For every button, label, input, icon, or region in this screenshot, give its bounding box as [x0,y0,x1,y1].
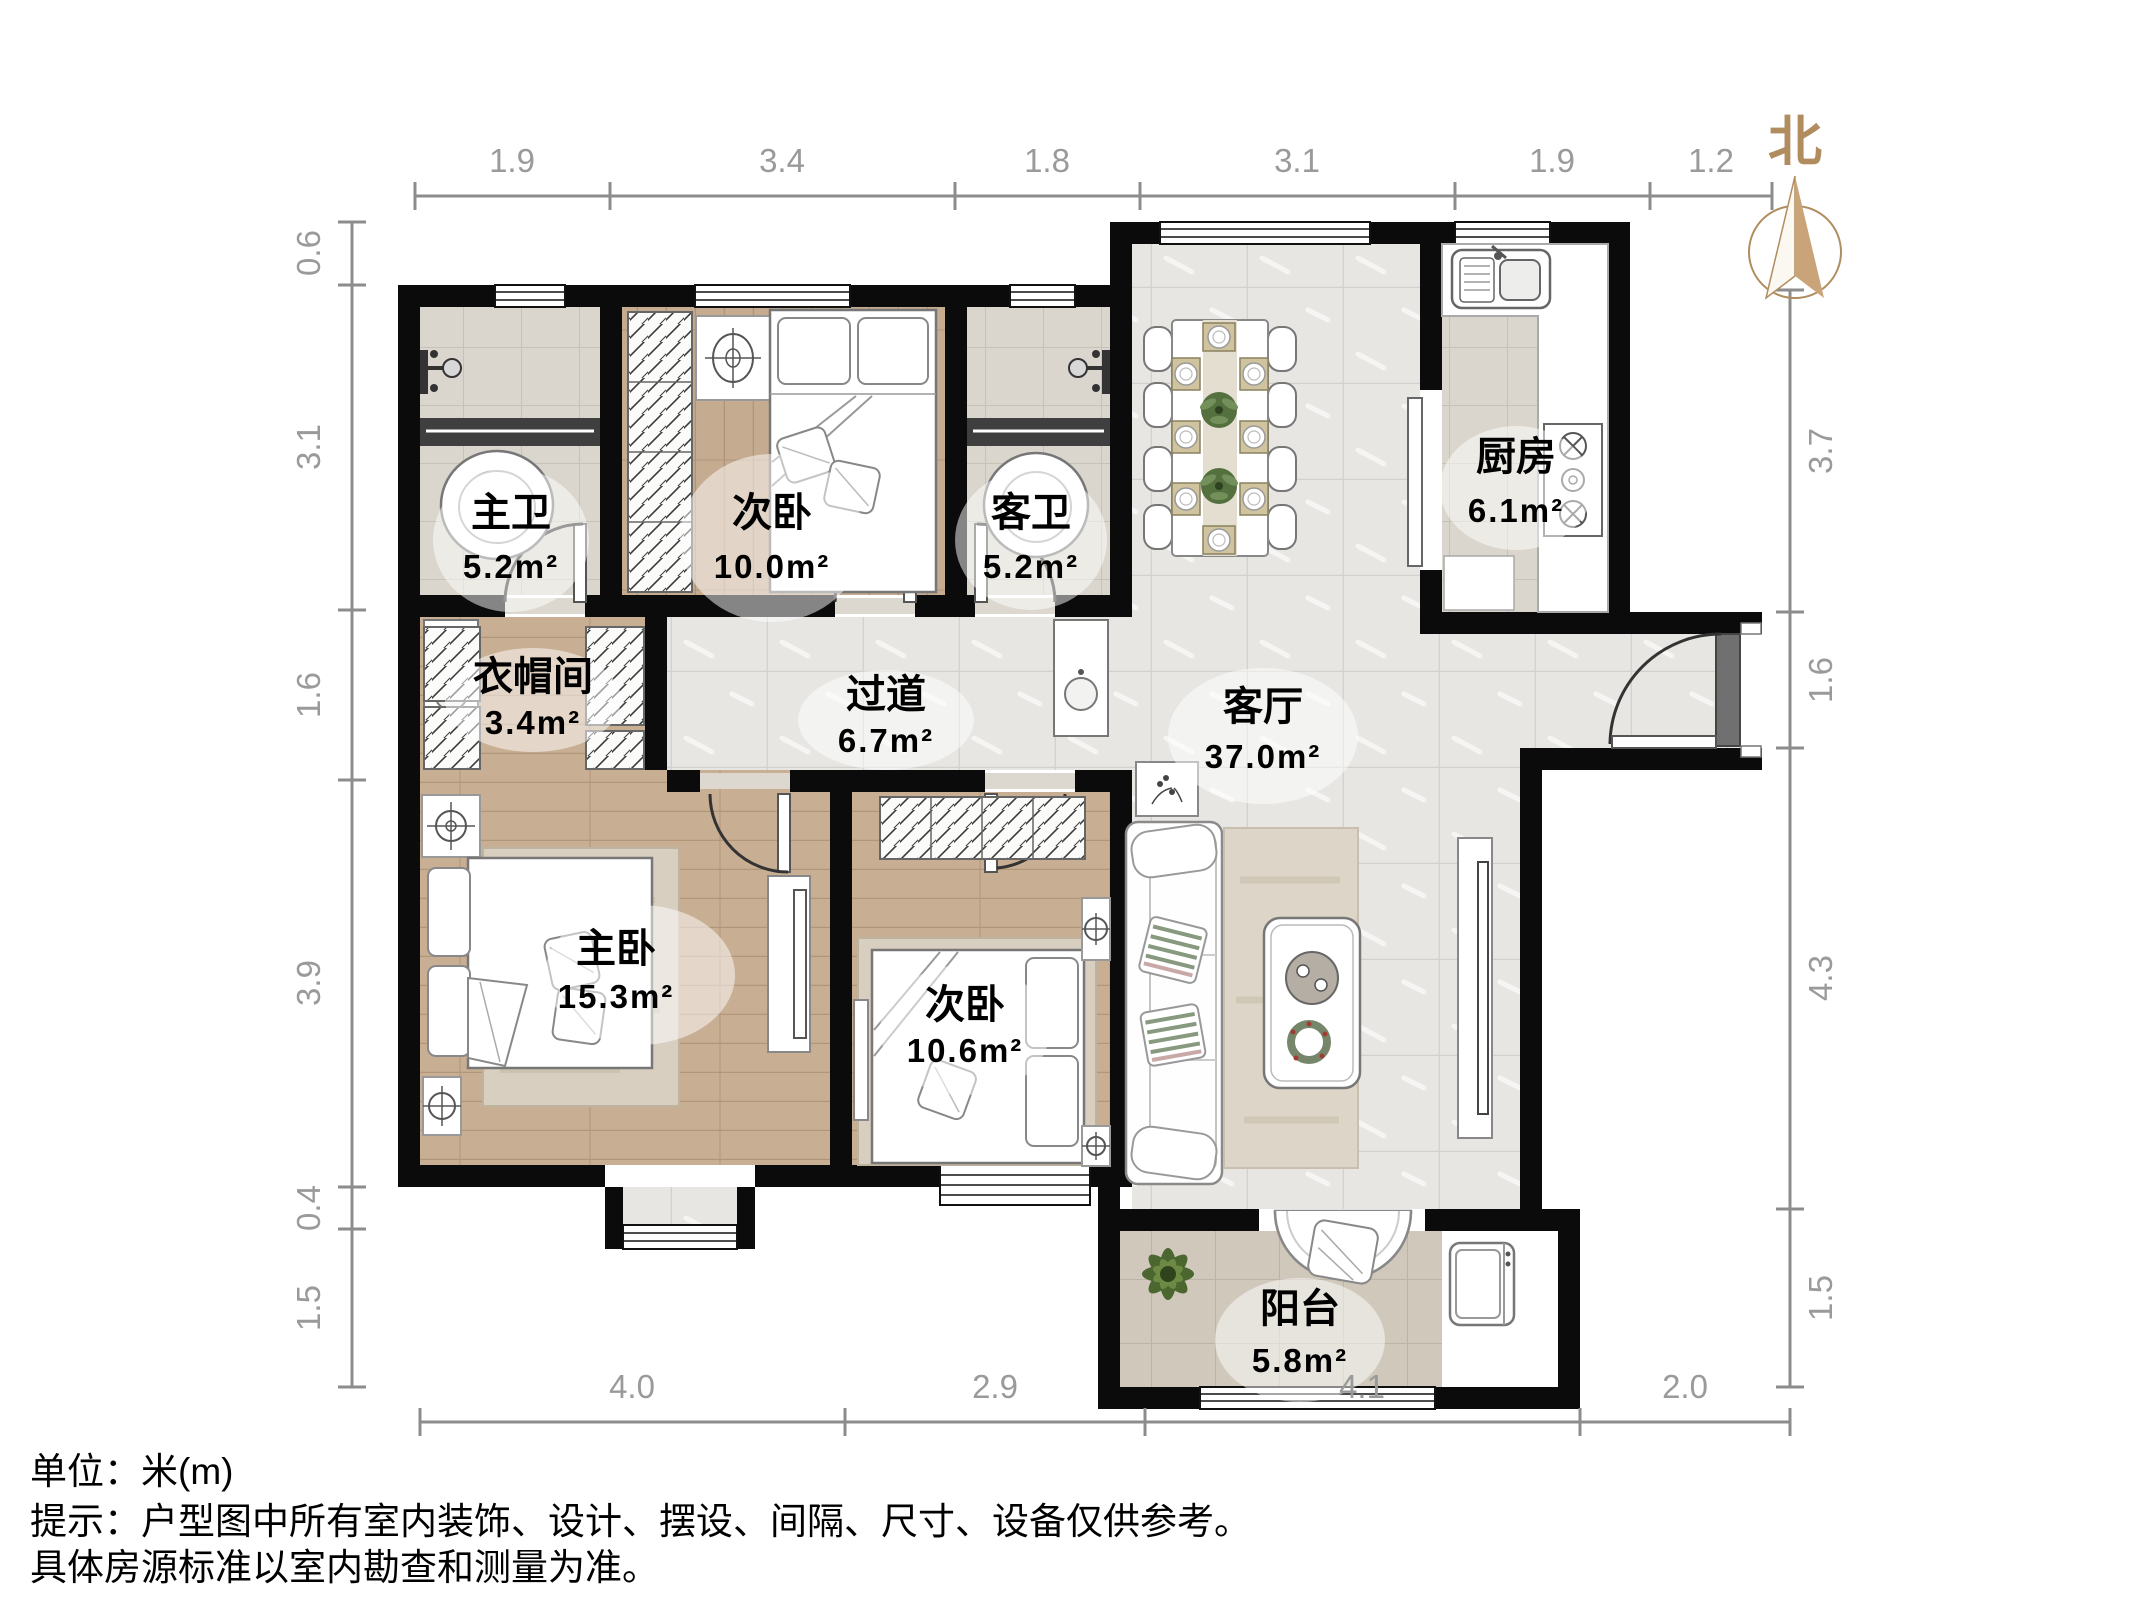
dim-right-2: 1.6 [1802,657,1839,703]
tv-cabinet-icon [768,876,810,1052]
room-area-living-room: 37.0m² [1205,738,1322,775]
room-area-bedroom2-south: 10.6m² [907,1032,1024,1069]
room-label-master-bath: 主卫 [471,491,551,535]
room-label-hallway: 过道 [846,673,926,717]
dim-bottom-1: 4.0 [609,1368,655,1405]
dim-top-3: 1.8 [1024,142,1070,179]
room-area-bedroom2-north: 10.0m² [714,548,831,585]
dim-top-2: 3.4 [759,142,805,179]
nightstand-icon [422,795,480,857]
room-label-bedroom2-south: 次卧 [925,983,1005,1027]
compass-needle-icon [1795,176,1824,298]
room-area-kitchen: 6.1m² [1468,492,1564,529]
dim-right-4: 1.5 [1802,1275,1839,1321]
dim-left-2: 3.1 [290,424,327,470]
room-label-bedroom2-north: 次卧 [732,491,812,535]
nightstand-icon [423,1077,461,1135]
shower-screen [420,418,600,446]
tv-cabinet-icon [1458,838,1492,1138]
pillow-icon [428,868,470,956]
footer-disclaimer-line2: 具体房源标准以室内勘查和测量为准。 [30,1547,659,1588]
sofa-icon [1126,822,1222,1184]
window [1455,222,1550,244]
footer-disclaimer-line1: 提示：户型图中所有室内装饰、设计、摆设、间隔、尺寸、设备仅供参考。 [30,1501,1251,1542]
window [940,1165,1090,1205]
plant-icon [1142,1248,1194,1300]
footer-notes: 单位：米(m) 提示：户型图中所有室内装饰、设计、摆设、间隔、尺寸、设备仅供参考… [30,1451,1251,1588]
dim-right-3: 4.3 [1802,955,1839,1001]
room-area-master-bath: 5.2m² [463,548,559,585]
room-label-balcony: 阳台 [1260,1287,1340,1331]
window [1160,222,1370,244]
floorplan-page: 主卫 5.2m² 次卧 10.0m² 客卫 5.2m² 厨房 6.1m² 衣帽间… [0,0,2136,1602]
room-label-master-bedroom: 主卧 [576,927,656,971]
dim-left-6: 1.5 [290,1285,327,1331]
dim-bottom-2: 2.9 [972,1368,1018,1405]
room-area-hallway: 6.7m² [838,722,934,759]
fridge-icon [1444,556,1514,610]
nightstand-icon [1082,1126,1110,1166]
room-label-kitchen: 厨房 [1476,435,1556,479]
kitchen-sink-icon [1452,246,1550,308]
dim-top-6: 1.2 [1688,142,1734,179]
compass-needle-icon [1766,176,1795,298]
dim-bottom-3: 4.1 [1339,1368,1385,1405]
nightstand-icon [1082,898,1110,960]
nightstand-icon [696,316,770,400]
room-label-guest-bath: 客卫 [991,491,1071,535]
vanity-sink-icon [1054,620,1108,736]
tv-panel-icon [854,1000,868,1120]
dim-top-1: 1.9 [489,142,535,179]
room-label-living-room: 客厅 [1223,685,1303,729]
window [495,285,565,307]
dim-top-5: 1.9 [1529,142,1575,179]
footer-unit-line: 单位：米(m) [30,1451,233,1492]
dim-left-1: 0.6 [290,230,327,276]
bay-window [623,1225,737,1249]
entry-floor [1520,634,1740,748]
north-label: 北 [1768,112,1822,172]
floorplan-canvas: 主卫 5.2m² 次卧 10.0m² 客卫 5.2m² 厨房 6.1m² 衣帽间… [0,0,2136,1602]
room-area-balcony: 5.8m² [1252,1342,1348,1379]
dim-left-3: 1.6 [290,672,327,718]
dim-bottom-4: 2.0 [1662,1368,1708,1405]
window [695,285,850,307]
kitchen-sliding-door [1408,398,1422,566]
tv-icon [1478,862,1488,1114]
compass: 北 [1749,112,1841,298]
pillow-icon [1026,1056,1078,1146]
dim-left-5: 0.4 [290,1185,327,1231]
striped-cushion-icon [1140,1003,1206,1066]
room-area-guest-bath: 5.2m² [983,548,1079,585]
pillow-icon [428,966,470,1056]
washing-machine-icon [1450,1243,1514,1325]
room-area-master-bedroom: 15.3m² [558,978,675,1015]
room-area-cloakroom: 3.4m² [485,704,581,741]
coffee-table-icon [1264,918,1360,1088]
room-label-cloakroom: 衣帽间 [473,655,593,699]
window [1010,285,1075,307]
dim-left-4: 3.9 [290,960,327,1006]
dim-right-1: 3.7 [1802,428,1839,474]
shower-screen [967,418,1110,446]
dim-top-4: 3.1 [1274,142,1320,179]
